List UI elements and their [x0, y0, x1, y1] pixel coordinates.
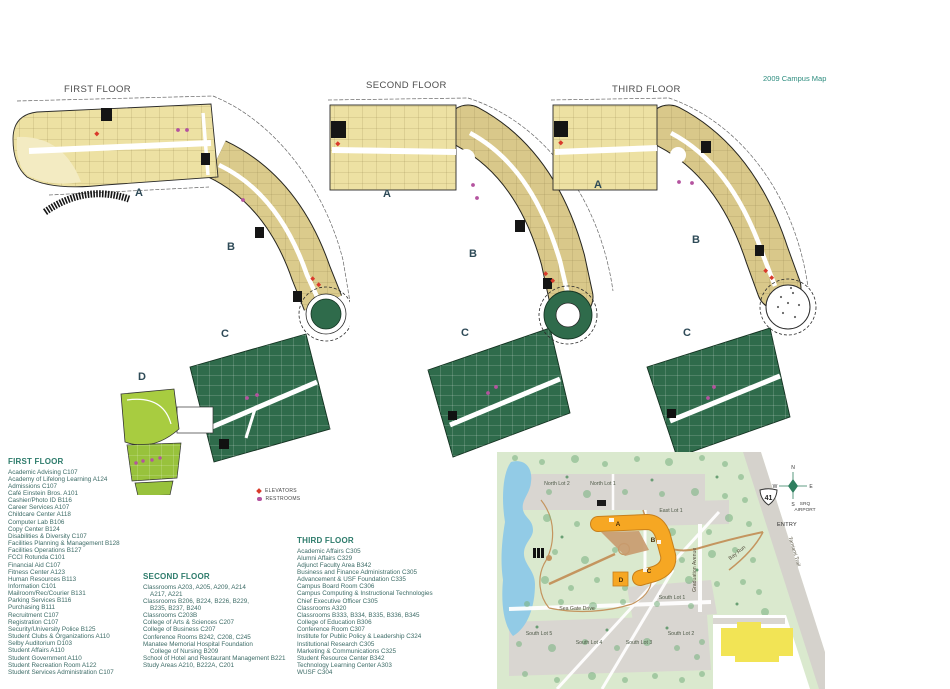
- legend-item: Classrooms A203, A205, A209, A214 A217, …: [143, 584, 298, 598]
- sea-gate-drive-label: Sea Gate Drive: [559, 606, 595, 612]
- wing-b-band: [457, 127, 571, 297]
- site-structures: [533, 500, 606, 561]
- legend-item: Disabilities & Diversity C107: [8, 533, 143, 540]
- north-lot-1-label: North Lot 1: [590, 481, 616, 487]
- elevator-icon: [256, 488, 262, 494]
- legend-item: Student Affairs A110: [8, 647, 143, 654]
- legend-item: Student Clubs & Organizations A110: [8, 633, 143, 640]
- first-floor-plan: A B C D: [5, 95, 350, 495]
- legend-item: Marketing & Communications C325: [297, 648, 497, 655]
- site-wing-d-label: D: [619, 577, 624, 584]
- second-floor-title: SECOND FLOOR: [366, 80, 447, 91]
- legend-item: Classrooms B333, B334, B335, B336, B345: [297, 612, 497, 619]
- legend-item: Conference Room C307: [297, 626, 497, 633]
- legend-item: Advancement & USF Foundation C335: [297, 576, 497, 583]
- legend-item: Parking Services B116: [8, 597, 143, 604]
- wing-c-label: C: [221, 328, 229, 340]
- wing-letters: A B C: [383, 188, 477, 339]
- second-floor-plan: A B C: [320, 95, 640, 460]
- pergola-arc: [45, 194, 129, 212]
- wing-b-band: [669, 127, 779, 288]
- elevator-markers: [94, 131, 321, 287]
- rotunda-first-floor: [299, 287, 350, 341]
- compass-e: E: [809, 484, 813, 490]
- compass-w: W: [773, 484, 778, 490]
- legend-item: Admissions C107: [8, 483, 143, 490]
- legend-item: FCCI Rotunda C101: [8, 554, 143, 561]
- legend-item: Academic Advising C107: [8, 469, 143, 476]
- legend-item: Academy of Lifelong Learning A124: [8, 476, 143, 483]
- campus-map-page: 2009 Campus Map FIRST FLOOR SECOND FLOOR…: [0, 0, 950, 689]
- compass-n: N: [791, 465, 795, 471]
- campus-roads-white: [509, 474, 719, 689]
- route-41-shield: 41: [760, 489, 777, 505]
- legend-item: Manatee Memorial Hospital Foundation Col…: [143, 641, 298, 655]
- airport-label-line1: SRQ: [800, 501, 811, 507]
- legend-item: Institutional Research C305: [297, 641, 497, 648]
- legend-second-floor: SECOND FLOOR Classrooms A203, A205, A209…: [143, 572, 298, 669]
- north-lot-2-label: North Lot 2: [544, 481, 570, 487]
- tamiami-trail-label: Tamiami Trail: [787, 536, 802, 567]
- canopy-lines: [551, 98, 808, 287]
- legend-item: Study Areas A210, B222A, C201: [143, 662, 298, 669]
- legend-item: Student Services Administration C107: [8, 669, 143, 676]
- legend-item: Registration C107: [8, 619, 143, 626]
- map-title: 2009 Campus Map: [763, 74, 826, 83]
- first-floor-title: FIRST FLOOR: [64, 84, 131, 95]
- legend-item: Financial Aid C107: [8, 562, 143, 569]
- legend-item: Recruitment C107: [8, 612, 143, 619]
- yellow-building: [721, 622, 793, 662]
- third-floor-title: THIRD FLOOR: [612, 84, 681, 95]
- legend-item: Institute for Public Policy & Leadership…: [297, 633, 497, 640]
- south-lot-1-label: South Lot 1: [659, 595, 686, 601]
- building-footprint: A B C D: [598, 518, 668, 586]
- site-wing-c-label: C: [647, 568, 652, 575]
- rotunda-third-floor: [760, 279, 816, 335]
- legend-item: College of Education B306: [297, 619, 497, 626]
- legend-item: Copy Center B124: [8, 526, 143, 533]
- legend-item: Facilities Operations B127: [8, 547, 143, 554]
- wing-b-label: B: [227, 241, 235, 253]
- legend-item: Mailroom/Rec/Courier B131: [8, 590, 143, 597]
- legend-item: Selby Auditorium D103: [8, 640, 143, 647]
- legend-list-first: Academic Advising C107Academy of Lifelon…: [8, 469, 143, 677]
- restrooms-key-row: RESTROOMS: [257, 495, 300, 503]
- wing-a-label: A: [594, 179, 602, 191]
- legend-item: Technology Learning Center A303: [297, 662, 497, 669]
- legend-list-second: Classrooms A203, A205, A209, A214 A217, …: [143, 584, 298, 670]
- legend-item: Cashier/Photo ID B116: [8, 497, 143, 504]
- legend-item: Conference Rooms B242, C208, C245: [143, 634, 298, 641]
- legend-item: Career Services A107: [8, 504, 143, 511]
- legend-item: Classrooms C203B: [143, 612, 298, 619]
- gray-strip: [713, 618, 785, 624]
- trees: [512, 455, 769, 683]
- legend-item: Classrooms B206, B224, B226, B229, B235,…: [143, 598, 298, 612]
- site-labels: North Lot 2 North Lot 1 East Lot 1 South…: [526, 481, 816, 646]
- wing-letters: A B C: [594, 179, 700, 339]
- wing-b-band: [217, 159, 323, 303]
- south-lot-2-label: South Lot 2: [668, 631, 695, 637]
- wing-c-label: C: [461, 327, 469, 339]
- wing-b-label: B: [469, 248, 477, 260]
- legend-item: Student Resource Center B342: [297, 655, 497, 662]
- lake: [502, 461, 535, 636]
- elevators-key-row: ELEVATORS: [257, 487, 300, 495]
- legend-item: Human Resources B113: [8, 576, 143, 583]
- wing-a-block: [13, 104, 218, 187]
- legend-item: Childcare Center A118: [8, 511, 143, 518]
- legend-item: Computer Lab B106: [8, 519, 143, 526]
- legend-item: College of Business C207: [143, 626, 298, 633]
- legend-item: School of Hotel and Restaurant Managemen…: [143, 655, 298, 662]
- white-area-bottom-right: [713, 615, 810, 689]
- legend-item: Academic Affairs C305: [297, 548, 497, 555]
- elevator-markers: [335, 141, 555, 283]
- restrooms-key-label: RESTROOMS: [266, 496, 301, 502]
- legend-item: Campus Board Room C306: [297, 583, 497, 590]
- legend-item: Purchasing B111: [8, 604, 143, 611]
- bay-run-label: Bay Run: [728, 545, 747, 562]
- canopy-lines: [328, 98, 613, 291]
- legend-item: College of Arts & Sciences C207: [143, 619, 298, 626]
- connector-d-c: [177, 407, 213, 433]
- legend-item: Classrooms A320: [297, 605, 497, 612]
- legend-item: Information C101: [8, 583, 143, 590]
- tamiami-trail-road: [743, 452, 825, 689]
- elevators-key-label: ELEVATORS: [265, 488, 297, 494]
- legend-item: WUSF C304: [297, 669, 497, 676]
- legend-heading-first: FIRST FLOOR: [8, 457, 143, 466]
- wing-letters: A B C D: [135, 187, 235, 383]
- south-lot-5-label: South Lot 5: [526, 631, 553, 637]
- wing-c-block: [647, 328, 790, 457]
- east-lot-1-label: East Lot 1: [659, 508, 682, 514]
- wing-a-block: [330, 105, 456, 190]
- map-key: ELEVATORS RESTROOMS: [257, 487, 300, 503]
- compass-rose: N E S W: [773, 465, 814, 508]
- legend-list-third: Academic Affairs C305Alumni Affairs C329…: [297, 548, 497, 677]
- compass-s: S: [791, 502, 795, 508]
- wing-c-label: C: [683, 327, 691, 339]
- restroom-icon: [257, 497, 262, 502]
- legend-item: Adjunct Faculty Area B342: [297, 562, 497, 569]
- wing-a-label: A: [383, 188, 391, 200]
- route-41-number: 41: [765, 495, 773, 502]
- trees-dark: [536, 476, 739, 632]
- wing-a-block: [553, 105, 657, 190]
- site-wing-b-label: B: [651, 537, 656, 544]
- airport-label-line2: AIRPORT: [794, 507, 815, 513]
- legend-item: Business and Finance Administration C305: [297, 569, 497, 576]
- legend-third-floor: THIRD FLOOR Academic Affairs C305Alumni …: [297, 536, 497, 676]
- legend-item: Security/University Police B125: [8, 626, 143, 633]
- wing-a-label: A: [135, 187, 143, 199]
- elevator-markers: [558, 140, 774, 280]
- restroom-markers: [677, 180, 716, 400]
- legend-item: Facilities Planning & Management B128: [8, 540, 143, 547]
- south-lot-3-label: South Lot 3: [626, 640, 653, 646]
- legend-item: Student Government A110: [8, 655, 143, 662]
- site-wing-a-label: A: [616, 521, 621, 528]
- parking-lots: [509, 474, 729, 676]
- legend-item: Campus Computing & Instructional Technol…: [297, 590, 497, 597]
- campus-paths-brown: [540, 500, 763, 611]
- wing-c-block: [428, 328, 570, 457]
- entry-label: ENTRY: [777, 522, 797, 528]
- wing-b-label: B: [692, 234, 700, 246]
- canopy-lines: [17, 96, 350, 302]
- legend-item: Café Einstein Bros. A101: [8, 490, 143, 497]
- third-floor-plan: A B C: [545, 95, 855, 460]
- site-background: [497, 452, 825, 689]
- restroom-markers: [134, 128, 259, 465]
- wing-c-block: [190, 334, 330, 462]
- campus-site-map: A B C D N E S W 41 North Lot 2 North Lot…: [497, 452, 825, 689]
- wing-d-label: D: [138, 371, 146, 383]
- legend-heading-second: SECOND FLOOR: [143, 572, 298, 581]
- restroom-markers: [471, 183, 498, 395]
- legend-item: Chief Executive Officer C305: [297, 598, 497, 605]
- legend-item: Student Recreation Room A122: [8, 662, 143, 669]
- rotunda-second-floor: [539, 286, 597, 344]
- graduation-avenue-label: Graduation Avenue: [692, 548, 698, 592]
- white-area-top-right: [761, 452, 825, 652]
- south-lot-4-label: South Lot 4: [576, 640, 603, 646]
- legend-item: Alumni Affairs C329: [297, 555, 497, 562]
- legend-first-floor: FIRST FLOOR Academic Advising C107Academ…: [8, 457, 143, 676]
- legend-heading-third: THIRD FLOOR: [297, 536, 497, 545]
- legend-item: Fitness Center A123: [8, 569, 143, 576]
